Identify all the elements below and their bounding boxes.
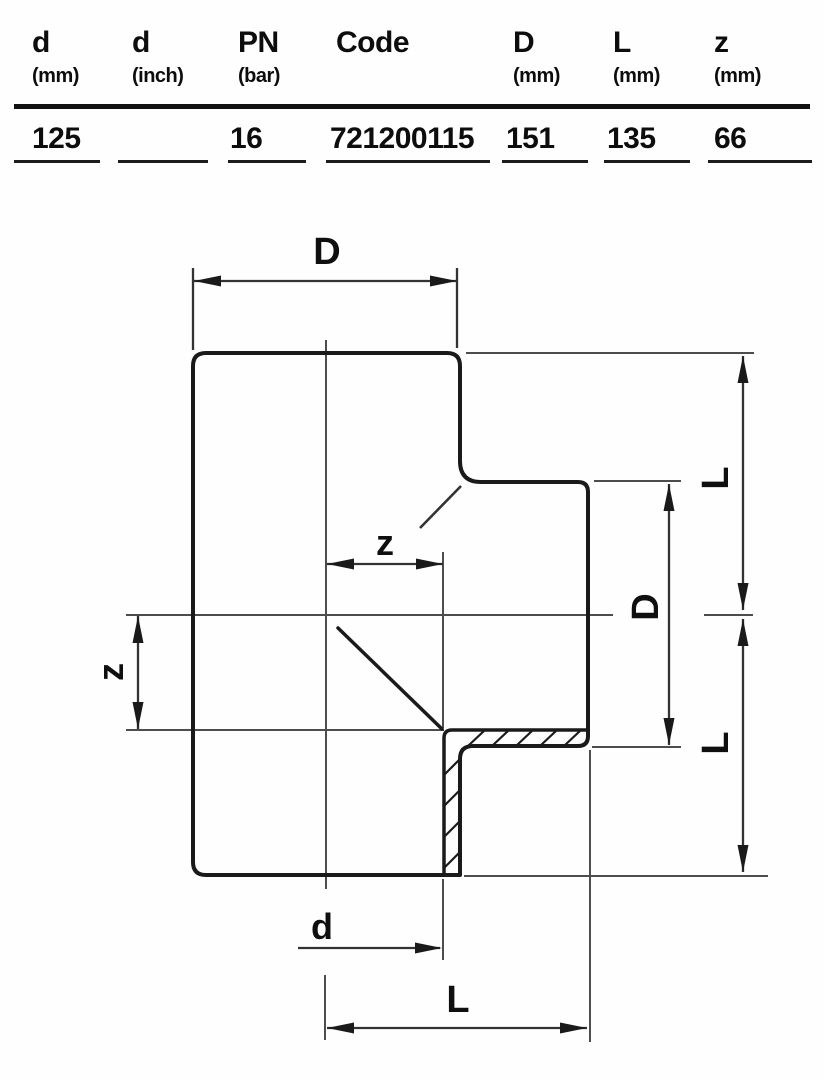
- arrowhead: [738, 356, 749, 383]
- arrowhead: [194, 276, 221, 287]
- center-and-extension-lines: [126, 340, 768, 1042]
- dimension-lines: [138, 268, 743, 1028]
- corner-leader-line: [420, 486, 461, 528]
- arrowhead: [327, 559, 354, 570]
- label-left-offset-z: z: [93, 663, 129, 681]
- internal-chamfer-line: [338, 628, 442, 729]
- arrowhead: [560, 1023, 587, 1034]
- dimension-arrowheads: [133, 276, 749, 1034]
- arrowhead: [738, 619, 749, 646]
- label-top-width-D: D: [313, 233, 340, 271]
- arrowhead: [133, 702, 144, 729]
- catalog-sheet: d d PN Code D L z (mm) (inch) (bar) (mm)…: [0, 0, 824, 1080]
- socket-bore-line: [444, 730, 588, 875]
- arrowhead: [133, 616, 144, 643]
- label-bottom-length-L: L: [446, 981, 469, 1019]
- label-branch-offset-z: z: [376, 525, 394, 561]
- arrowhead: [430, 276, 457, 287]
- label-upper-length-L: L: [697, 466, 735, 489]
- arrowhead: [664, 484, 675, 511]
- label-branch-diameter-D: D: [627, 593, 665, 620]
- label-lower-length-L: L: [697, 731, 735, 754]
- arrowhead: [738, 845, 749, 872]
- label-bore-diameter-d: d: [311, 909, 333, 945]
- tee-fitting-drawing: [0, 0, 824, 1080]
- arrowhead: [327, 1023, 354, 1034]
- arrowhead: [664, 718, 675, 745]
- arrowhead: [416, 559, 443, 570]
- arrowhead: [738, 583, 749, 610]
- arrowhead: [415, 943, 442, 954]
